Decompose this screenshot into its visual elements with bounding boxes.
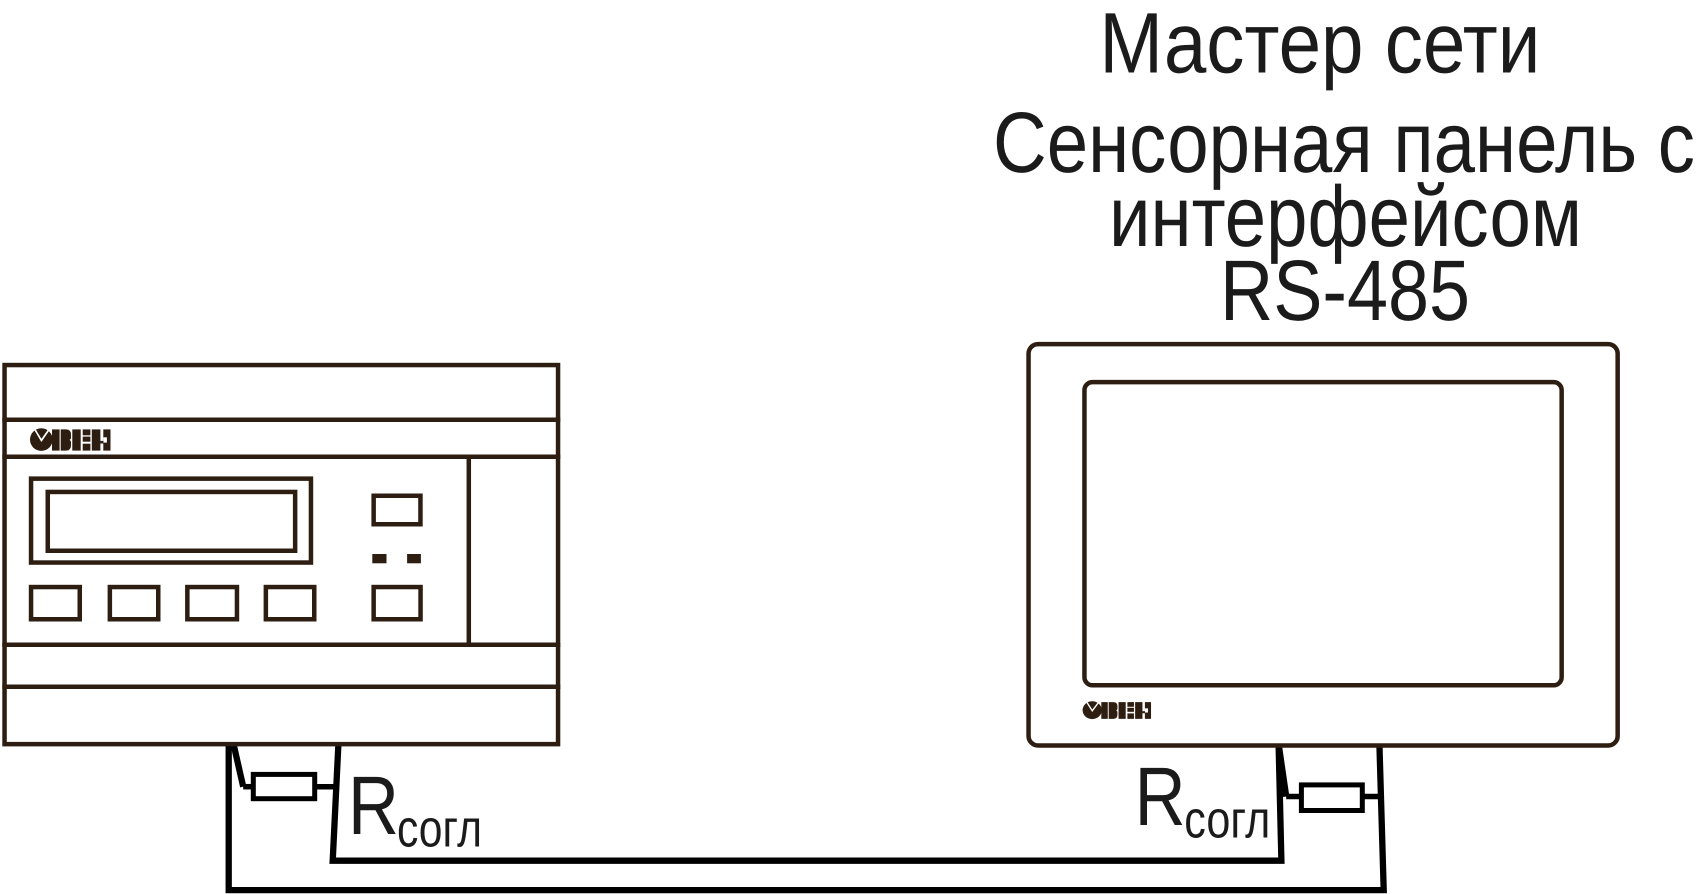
svg-text:согл: согл bbox=[1184, 790, 1270, 849]
svg-text:Мастер сети: Мастер сети bbox=[1099, 0, 1540, 92]
svg-text:согл: согл bbox=[397, 800, 482, 859]
svg-text:R: R bbox=[1135, 750, 1186, 843]
svg-text:R: R bbox=[348, 759, 399, 852]
svg-text:RS-485: RS-485 bbox=[1220, 243, 1470, 339]
